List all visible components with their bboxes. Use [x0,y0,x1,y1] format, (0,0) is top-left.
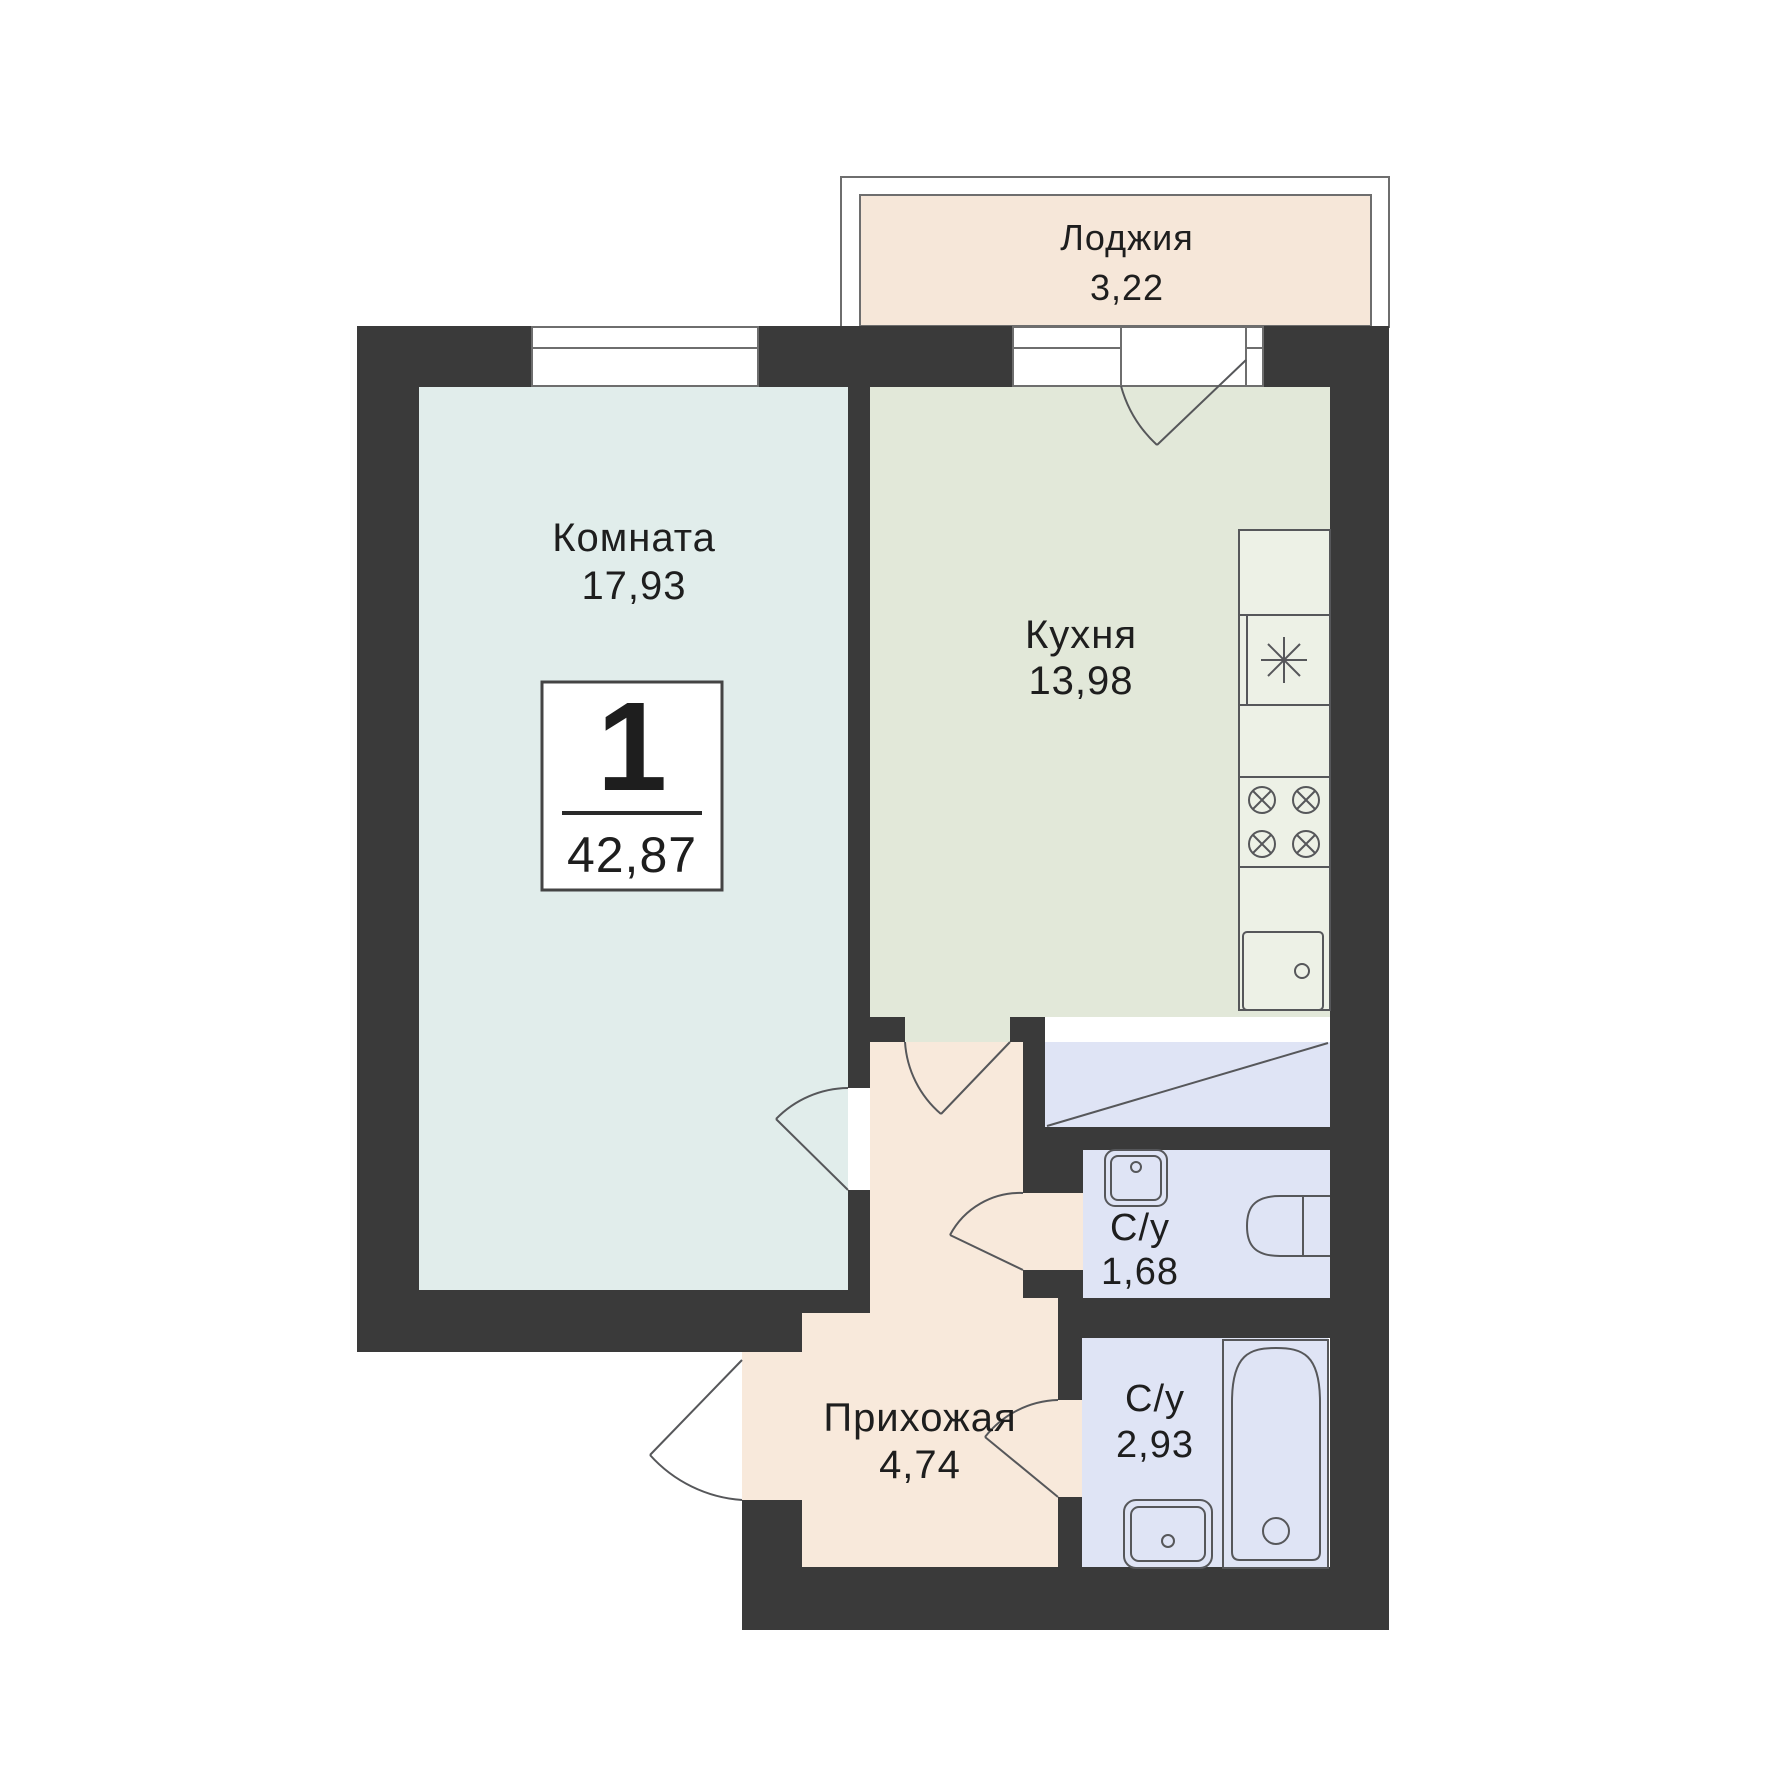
wall-wc-small-left-upper [1023,1150,1083,1193]
wall-wc-small-left-lower [1023,1270,1083,1298]
wall-top-middle [758,326,1013,387]
apartment-number: 1 [597,676,667,817]
wc-small-area: 1,68 [1101,1251,1179,1293]
room-floors [419,387,1330,1568]
living-room-name: Комната [552,516,716,560]
wall-partition-upper [848,387,870,1088]
loggia-area: 3,22 [1090,267,1164,308]
balcony-door-opening [1121,327,1263,386]
wall-bottom [742,1567,1389,1630]
wall-partition-corner [802,1290,870,1313]
wc-large-doorway-floor [1058,1400,1082,1497]
hallway-area: 4,74 [879,1443,961,1487]
wash-basin-icon [1124,1500,1212,1568]
kitchen-area: 13,98 [1028,659,1133,703]
living-room-area: 17,93 [581,564,686,608]
kitchen-doorway-floor [905,1017,1010,1042]
kitchen-counter [1239,530,1330,1010]
wall-entry-strip [742,1500,802,1630]
wc-large-area: 2,93 [1116,1424,1194,1466]
wall-between-wcs [1058,1298,1330,1338]
wall-wc-large-left-upper [1058,1338,1082,1400]
wc-small-name: С/у [1110,1207,1170,1249]
wall-wc-large-left-lower [1058,1497,1082,1567]
toilet-icon [1247,1196,1330,1256]
wall-left [357,326,419,1352]
kitchen-sink-icon [1243,932,1323,1010]
wash-basin-icon [1105,1150,1167,1206]
wall-kitchen-bottom-right [1010,1017,1045,1042]
living-room-window [532,327,758,386]
bathtub-icon [1223,1340,1328,1568]
wall-above-wc-small [1023,1127,1330,1150]
floor-plan-canvas: 1 42,87 Лоджия 3,22 Комната 17,93 Кухня … [0,0,1772,1772]
apartment-total-area: 42,87 [567,827,697,883]
wall-right [1330,326,1389,1630]
kitchen-window [1013,327,1121,386]
floor-plan: 1 42,87 Лоджия 3,22 Комната 17,93 Кухня … [0,0,1772,1772]
wc-small-doorway-floor [1023,1193,1083,1270]
wc-large-name: С/у [1125,1378,1185,1420]
wall-living-bottom [357,1290,802,1352]
apartment-badge: 1 42,87 [542,676,722,890]
wall-wardrobe-left [1023,1042,1045,1127]
loggia-name: Лоджия [1060,217,1194,258]
entrance-door-swing [650,1360,742,1500]
kitchen-name: Кухня [1025,613,1137,657]
wall-partition-lower [848,1190,870,1290]
wall-kitchen-bottom-left [848,1017,905,1042]
hallway-name: Прихожая [823,1396,1016,1440]
